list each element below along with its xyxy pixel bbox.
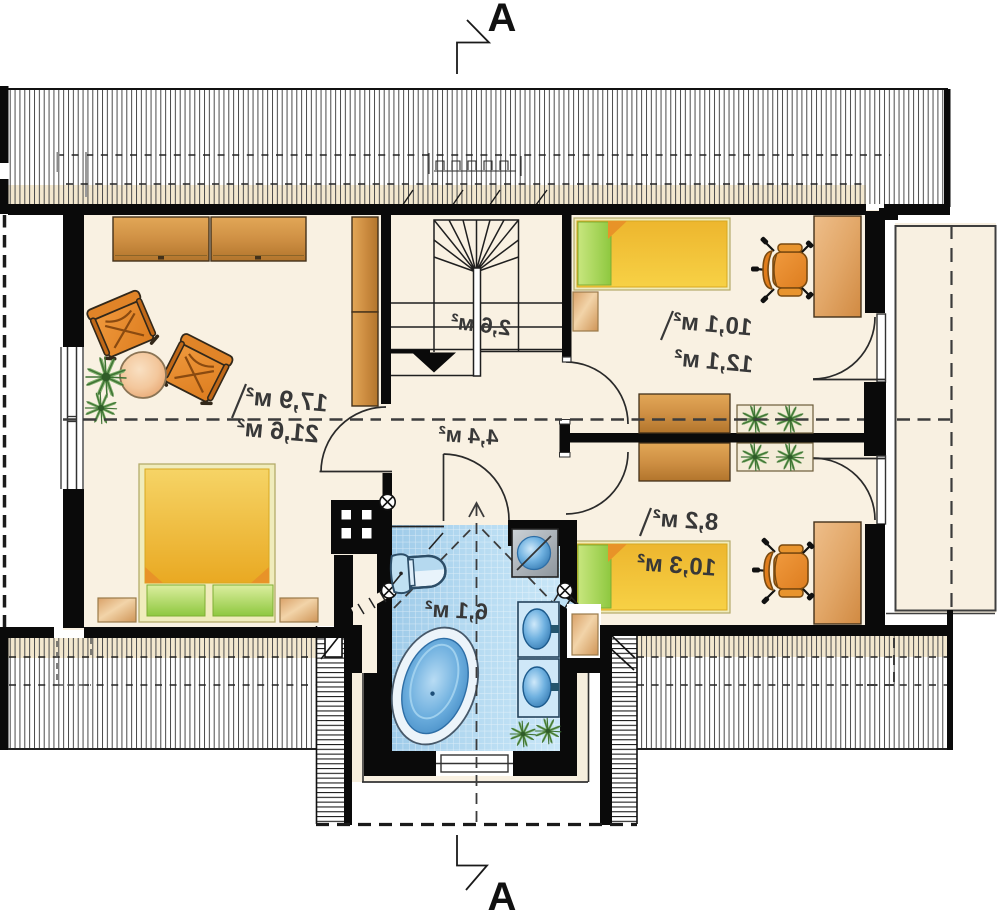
svg-text:A: A (488, 0, 517, 40)
svg-text:6,1 м²: 6,1 м² (424, 595, 489, 624)
svg-text:A: A (488, 875, 517, 910)
svg-text:10,3 м²: 10,3 м² (636, 549, 717, 581)
svg-text:8,2 м²: 8,2 м² (652, 505, 720, 537)
svg-text:4,4 м²: 4,4 м² (438, 421, 500, 450)
